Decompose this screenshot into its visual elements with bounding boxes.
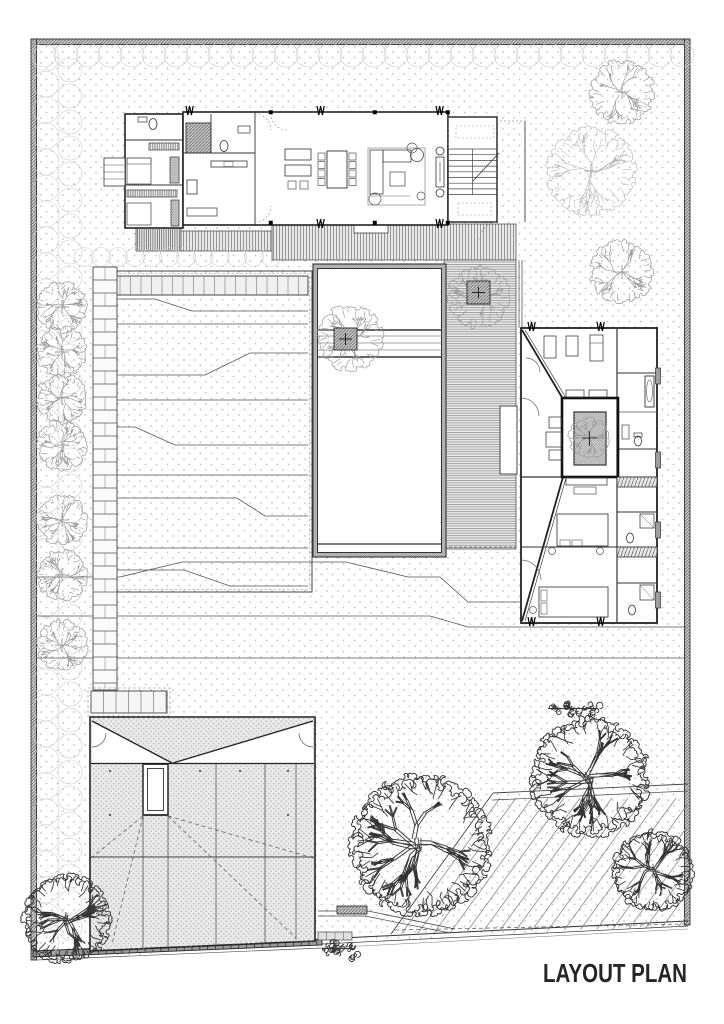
svg-text:LAYOUT PLAN: LAYOUT PLAN — [543, 958, 687, 988]
